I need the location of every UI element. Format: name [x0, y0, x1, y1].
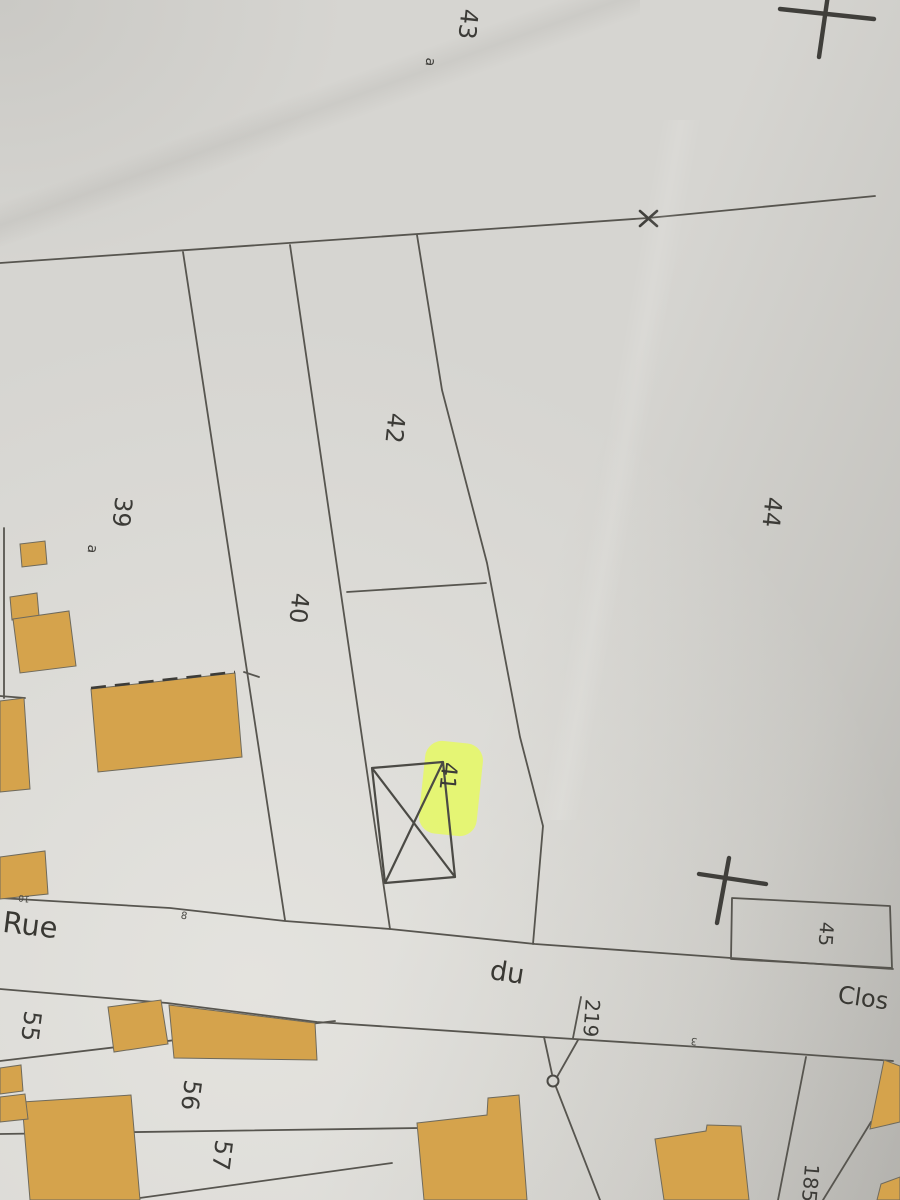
parcel-label-56: 56: [175, 1078, 207, 1112]
building: [877, 1177, 900, 1200]
building: [22, 1095, 140, 1200]
junction-line-a: [544, 1037, 552, 1074]
boundary-point-marker: [548, 1076, 559, 1087]
sliver-185-east: [823, 1122, 871, 1200]
building: [20, 541, 47, 567]
building: [0, 1065, 23, 1094]
survey-cross-icon: [780, 0, 874, 57]
parcel-label-39a: a: [84, 544, 101, 554]
junction-line-south: [556, 1087, 600, 1200]
building: [0, 851, 48, 899]
road-edge-north: [0, 898, 893, 969]
measure-mark-3: 3: [690, 1035, 698, 1047]
measure-mark-10: 10: [17, 892, 30, 904]
boundary-42-44: [417, 235, 543, 944]
building: [0, 698, 30, 792]
parcel-label-57: 57: [206, 1138, 238, 1172]
street-label-rue: Rue: [1, 905, 60, 945]
divider-42-41: [347, 583, 486, 592]
parcel-label-44: 44: [756, 495, 787, 528]
parcel-label-45: 45: [814, 921, 838, 947]
building: [108, 1000, 168, 1052]
boundary-40-42: [290, 245, 390, 929]
building: [655, 1125, 749, 1200]
street-label-clos: Clos: [836, 981, 890, 1016]
cadastral-map-photo: 43 a 42 40 39 a 44 41 45 55 56 57 219 18…: [0, 0, 900, 1200]
boundary-39-40: [183, 252, 285, 920]
street-label-du: du: [488, 955, 527, 991]
parcel-label-40: 40: [283, 591, 314, 624]
boundary-57-south: [125, 1163, 392, 1200]
measure-mark-8: 8: [180, 911, 188, 923]
building: [13, 611, 76, 673]
parcel-label-39: 39: [106, 495, 137, 528]
junction-line-b: [557, 1040, 578, 1077]
parcel-label-43: 43: [452, 7, 483, 40]
building: [417, 1095, 527, 1200]
parcel-label-42: 42: [379, 411, 410, 444]
boundary-tick: [244, 672, 259, 677]
parcel-label-41: 41: [434, 761, 462, 791]
cadastre-plan: 43 a 42 40 39 a 44 41 45 55 56 57 219 18…: [0, 0, 900, 1200]
north-boundary-line: [0, 196, 875, 263]
building: [0, 1094, 28, 1122]
building: [870, 1060, 900, 1129]
parcel-label-55: 55: [15, 1009, 47, 1043]
survey-crosses: [699, 0, 874, 923]
parcel-label-219: 219: [578, 998, 605, 1038]
parcel-label-185: 185: [797, 1163, 824, 1200]
parcel-45-outline: [731, 898, 892, 968]
building: [91, 673, 242, 772]
parcel-label-43a: a: [422, 57, 439, 67]
